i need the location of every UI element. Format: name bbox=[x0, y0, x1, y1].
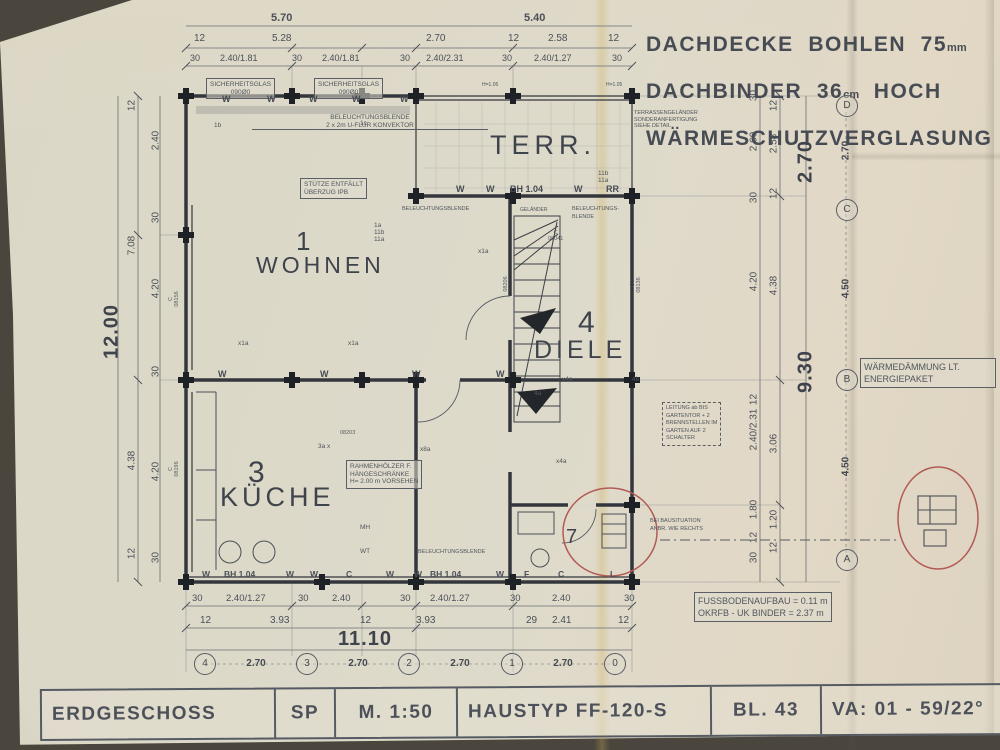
dim-label: 2.70 bbox=[426, 33, 445, 44]
dim-label: 2.41 bbox=[552, 615, 571, 626]
tag-h105-right: H=1.05 bbox=[606, 82, 622, 89]
tag-3a: 3a x bbox=[318, 443, 330, 450]
header-line-1-text: DACHDECKE BOHLEN 75 bbox=[646, 33, 947, 56]
dim-label: 30 bbox=[510, 593, 521, 604]
room-label-kueche: KÜCHE bbox=[220, 482, 335, 513]
dim-label: 2.58 bbox=[548, 33, 567, 44]
dim-label: 30 bbox=[502, 53, 512, 63]
dim-label: 12 bbox=[194, 33, 205, 44]
dim-label: 5.70 bbox=[271, 12, 292, 24]
axis-bottom-span-3: 2.70 bbox=[440, 658, 480, 669]
axis-right-span-1: 2.70 bbox=[841, 131, 852, 171]
note-beleuchtungsblende-2: BELEUCHTUNGSBLENDE bbox=[402, 206, 469, 214]
axis-bottom-span-4: 2.70 bbox=[543, 658, 583, 669]
title-cell: ERDGESCHOSS bbox=[42, 690, 276, 739]
dim-label: 12 bbox=[360, 615, 371, 626]
window-mark: W bbox=[486, 184, 495, 194]
title-cell: HAUSTYP FF-120-S bbox=[458, 687, 712, 737]
dim-label: 30 bbox=[151, 196, 162, 240]
note-beleuchtungsblende-3: BELEUCHTUNGS- BLENDE bbox=[572, 206, 619, 221]
dim-label: 2.40 bbox=[552, 593, 571, 604]
dim-label: 30 bbox=[298, 593, 309, 604]
tag-1b: 1b bbox=[214, 122, 221, 129]
title-cell: VA: 01 - 59/22° bbox=[822, 685, 1000, 734]
dim-label: 29 bbox=[526, 615, 537, 626]
dim-label: W bbox=[202, 569, 210, 579]
dim-label: 3.93 bbox=[416, 615, 435, 626]
dim-label: 2.40 bbox=[151, 119, 162, 163]
window-marks-top: WWWWW bbox=[212, 94, 442, 104]
code-stair: 08206 bbox=[503, 264, 509, 304]
window-mark: W bbox=[400, 94, 409, 104]
note-stuetze-entfaellt: STÜTZE ENTFÄLLT ÜBERZUG IPB bbox=[300, 178, 367, 199]
tag-gelaender: GELÄNDER bbox=[520, 207, 548, 214]
window-marks-terrace: WWBH 1.04WRR bbox=[450, 184, 640, 194]
axis-bottom-span-1: 2.70 bbox=[236, 658, 276, 669]
dim-label: 2.60 bbox=[749, 120, 760, 164]
dim-label: 30 bbox=[400, 53, 410, 63]
header-line-2-suffix: HOCH bbox=[859, 80, 942, 103]
axis-right-c: C bbox=[836, 199, 858, 221]
dim-label: 3.06 bbox=[769, 422, 780, 466]
dim-label: 4.20 bbox=[151, 450, 162, 494]
dim-label: W bbox=[386, 569, 394, 579]
room-label-terrasse: TERR. bbox=[490, 130, 596, 161]
window-mark: W bbox=[309, 94, 318, 104]
dim-label: 12 bbox=[769, 172, 780, 216]
window-mark: W bbox=[352, 94, 361, 104]
tag-x4a-lower: x4a bbox=[556, 458, 566, 465]
dim-label: 30 bbox=[192, 593, 203, 604]
tag-1c: 1c bbox=[360, 120, 367, 127]
window-marks-middle: WWWW bbox=[200, 369, 510, 379]
dim-label: 30 bbox=[612, 53, 622, 63]
note-beleuchtungsblende-4: BELEUCHTUNGSBLENDE bbox=[418, 549, 485, 557]
code-terrace-door: C 08041 bbox=[548, 230, 563, 242]
title-block: ERDGESCHOSSSPM. 1:50HAUSTYP FF-120-SBL. … bbox=[40, 683, 1000, 741]
dim-label: 12 bbox=[200, 615, 211, 626]
note-terrassengelaender: TERRASSENGELÄNDER SONDERANFERTIGUNG SIEH… bbox=[634, 110, 698, 130]
dim-label: 2.40/1.81 bbox=[322, 53, 360, 63]
dim-label: 12 bbox=[127, 532, 138, 576]
dims-bottom-windows: WBH 1.04WWCWWBH 1.04WFCL bbox=[186, 569, 632, 580]
dim-label: 3.93 bbox=[270, 615, 289, 626]
code-window-left-upper: C 08156 bbox=[168, 279, 180, 319]
window-mark: W bbox=[222, 94, 231, 104]
code-diele-window: C 08136 bbox=[630, 265, 642, 305]
axis-right-d: D bbox=[836, 95, 858, 117]
window-mark: W bbox=[574, 184, 583, 194]
dim-label: 2.40/1.81 bbox=[220, 53, 258, 63]
tag-x1a-left: x1a bbox=[238, 340, 248, 347]
dim-label: 12 bbox=[127, 84, 138, 128]
window-mark: W bbox=[320, 369, 329, 379]
note-leitung-gartentor: LEITUNG ab BIS GARTENTOR + 2 BRENNSTELLE… bbox=[662, 402, 721, 446]
window-mark: W bbox=[456, 184, 465, 194]
tag-x1a-right: x1a bbox=[478, 248, 488, 255]
dim-label: 4.20 bbox=[749, 260, 760, 304]
tag-11b-11a: 11b 11a bbox=[598, 170, 608, 184]
dim-label: 30 bbox=[624, 593, 635, 604]
header-line-2: DACHBINDER 36cm HOCH bbox=[646, 79, 998, 108]
tag-mh: MH bbox=[360, 524, 370, 531]
tag-wt: WT bbox=[360, 548, 370, 555]
dim-left-overall: 12.00 bbox=[101, 292, 124, 372]
dim-label: BH 1.04 bbox=[224, 569, 255, 579]
header-line-1-unit: mm bbox=[947, 42, 967, 54]
note-fussbodenaufbau: FUSSBODENAUFBAU = 0.11 m OKRFB - UK BIND… bbox=[694, 592, 832, 622]
axis-right-span-3: 4.50 bbox=[841, 447, 852, 487]
dim-label: 30 bbox=[749, 536, 760, 580]
dim-label: 4.20 bbox=[151, 267, 162, 311]
header-line-3: WÄRMESCHUTZVERGLASUNG bbox=[646, 126, 998, 151]
dim-label: 5.28 bbox=[272, 33, 291, 44]
axis-bottom-3: 3 bbox=[296, 653, 318, 675]
note-beleuchtungsblende-konvektor: BELEUCHTUNGSBLENDE 2 x 2m U-FLUR KONVEKT… bbox=[252, 114, 488, 130]
dim-label: C bbox=[558, 569, 564, 579]
dim-label: 30 bbox=[749, 74, 760, 118]
dim-label: 2.40/1.27 bbox=[430, 593, 470, 604]
dim-label: 7.08 bbox=[127, 224, 138, 268]
drawing-header: DACHDECKE BOHLEN 75mm DACHBINDER 36cm HO… bbox=[646, 14, 998, 169]
tag-4b: 4b bbox=[632, 376, 639, 383]
dims-top-overall: 5.705.40 bbox=[186, 12, 632, 24]
room-number-diele: 4 bbox=[578, 306, 595, 340]
window-mark: W bbox=[412, 369, 421, 379]
tag-x4a-upper: x4a bbox=[562, 376, 572, 383]
axis-right-b: B bbox=[836, 369, 858, 391]
dim-right-overall-bottom: 9.30 bbox=[795, 332, 818, 412]
note-waermedaemmung: WÄRMEDÄMMUNG LT. ENERGIEPAKET bbox=[860, 358, 996, 388]
dims-bottom-row2: 302.40/1.27302.40302.40/1.27302.4030 bbox=[186, 593, 632, 605]
dim-right-overall-top: 2.70 bbox=[795, 122, 818, 202]
code-window-left-lower: C 08196 bbox=[168, 449, 180, 489]
dim-label: 12 bbox=[618, 615, 629, 626]
title-cell: M. 1:50 bbox=[336, 688, 458, 737]
dim-label: 12 bbox=[608, 33, 619, 44]
header-line-1: DACHDECKE BOHLEN 75mm bbox=[646, 32, 998, 61]
title-cell: BL. 43 bbox=[712, 686, 822, 735]
window-mark: RR bbox=[606, 184, 619, 194]
axis-right-span-2: 4.50 bbox=[841, 269, 852, 309]
code-kitchen-wall: 08203 bbox=[340, 430, 355, 436]
window-mark: BH 1.04 bbox=[510, 184, 543, 194]
note-rahmenhoelzer: RAHMENHÖLZER F. HÄNGESCHRÄNKE H= 2.00 m … bbox=[346, 460, 422, 489]
dim-label: 4.38 bbox=[769, 264, 780, 308]
dim-label: 30 bbox=[190, 53, 200, 63]
dim-label: W bbox=[286, 569, 294, 579]
dim-label: C bbox=[346, 569, 352, 579]
axis-bottom-0: 0 bbox=[604, 653, 626, 675]
blueprint-photo: DACHDECKE BOHLEN 75mm DACHBINDER 36cm HO… bbox=[0, 0, 1000, 750]
dim-label: 4.38 bbox=[127, 439, 138, 483]
window-mark: W bbox=[267, 94, 276, 104]
dim-label: BH 1.04 bbox=[430, 569, 461, 579]
room-label-diele: DIELE bbox=[534, 336, 626, 365]
tag-cluster-1a: 1a 11b 11a bbox=[374, 222, 384, 243]
tag-h105-left: H=1.05 bbox=[482, 82, 498, 89]
dims-top-row3: 302.40/1.81302.40/1.81302.40/2.31302.40/… bbox=[186, 53, 632, 65]
dims-top-row2: 125.282.70122.5812 bbox=[186, 33, 632, 45]
window-mark: W bbox=[218, 369, 227, 379]
dim-label: 30 bbox=[749, 176, 760, 220]
tag-x8a: x8a bbox=[420, 446, 430, 453]
dim-label: 30 bbox=[292, 53, 302, 63]
dim-label: W bbox=[310, 569, 318, 579]
window-mark: W bbox=[496, 369, 505, 379]
room-label-wohnen: WOHNEN bbox=[256, 252, 385, 279]
tag-x1a-mid: x1a bbox=[348, 340, 358, 347]
dims-bottom-row3: 123.93123.93292.4112 bbox=[186, 615, 632, 627]
dim-label: L bbox=[610, 569, 615, 579]
dim-label: 12 bbox=[769, 526, 780, 570]
room-number-bad: 7 bbox=[566, 526, 577, 549]
tag-4a: 4a bbox=[534, 390, 541, 397]
note-bausituation: BEI BAUSITUATION ANBR. WIE RECHTS bbox=[650, 518, 703, 533]
axis-bottom-2: 2 bbox=[398, 653, 420, 675]
dim-label: 30 bbox=[400, 593, 411, 604]
header-line-2-text: DACHBINDER 36 bbox=[646, 80, 843, 103]
dim-label: 2.58 bbox=[769, 122, 780, 166]
dim-label: 30 bbox=[151, 350, 162, 394]
dim-label: 2.40/1.27 bbox=[226, 593, 266, 604]
dim-label: 2.40 bbox=[332, 593, 351, 604]
dim-label: W bbox=[414, 569, 422, 579]
axis-bottom-span-2: 2.70 bbox=[338, 658, 378, 669]
dim-label: 2.40/1.27 bbox=[534, 53, 572, 63]
title-cell: SP bbox=[276, 689, 336, 737]
dim-label: 2.40/2.31 bbox=[749, 408, 760, 452]
dim-bottom-overall: 11.10 bbox=[338, 628, 392, 651]
dim-label: 2.40/2.31 bbox=[426, 53, 464, 63]
dim-label: F bbox=[524, 569, 529, 579]
dim-label: 12 bbox=[508, 33, 519, 44]
axis-bottom-1: 1 bbox=[501, 653, 523, 675]
dim-label: W bbox=[496, 569, 504, 579]
dim-label: 30 bbox=[151, 536, 162, 580]
axis-bottom-4: 4 bbox=[194, 653, 216, 675]
dim-label: 5.40 bbox=[524, 12, 545, 24]
axis-right-a: A bbox=[836, 549, 858, 571]
